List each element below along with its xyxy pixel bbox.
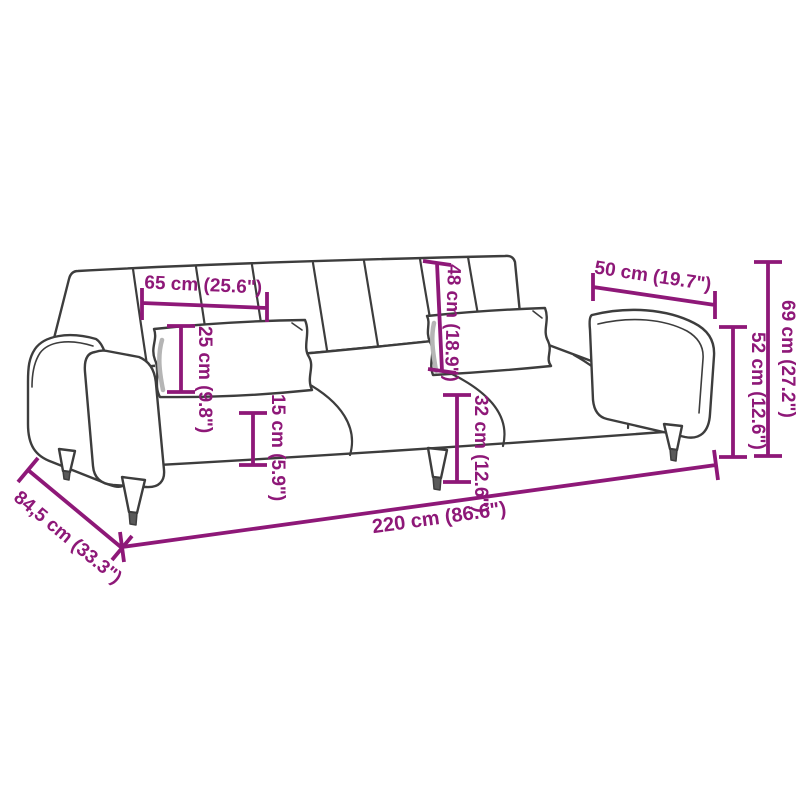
leg-front-left-tip	[129, 512, 137, 525]
leg-right-tip	[670, 449, 677, 461]
dimension-armrest-height-label: 52 cm (12.6")	[747, 332, 768, 450]
leg-right	[664, 424, 682, 450]
dimension-armrest-section-width: 50 cm (19.7")	[593, 257, 715, 319]
dimension-pillow-height-label: 25 cm (9.8")	[194, 326, 215, 433]
dimension-diagram: 65 cm (25.6") 25 cm (9.8") 15 cm (5.9") …	[0, 0, 800, 800]
diagram-canvas: 65 cm (25.6") 25 cm (9.8") 15 cm (5.9") …	[0, 0, 800, 800]
armrest-right-outer	[590, 310, 714, 438]
leg-front-left	[122, 477, 145, 513]
dimension-armrest-height-line	[719, 327, 747, 457]
dimension-backrest-height-label: 48 cm (18.9")	[440, 264, 464, 382]
dimension-overall-height-label: 69 cm (27.2")	[777, 300, 798, 418]
leg-middle-tip	[433, 477, 441, 490]
dimension-overall-width-line	[120, 450, 718, 562]
leg-back-left-tip	[63, 471, 70, 480]
dimension-seat-thickness-label: 15 cm (5.9")	[267, 394, 288, 501]
dimension-overall-width: 220 cm (86.6")	[120, 450, 718, 562]
pillow-left	[153, 320, 312, 397]
sofa-drawing	[28, 256, 714, 525]
armrest-left-panel	[85, 351, 164, 488]
leg-middle	[428, 448, 447, 478]
dimension-armrest-height: 52 cm (12.6")	[719, 327, 768, 457]
